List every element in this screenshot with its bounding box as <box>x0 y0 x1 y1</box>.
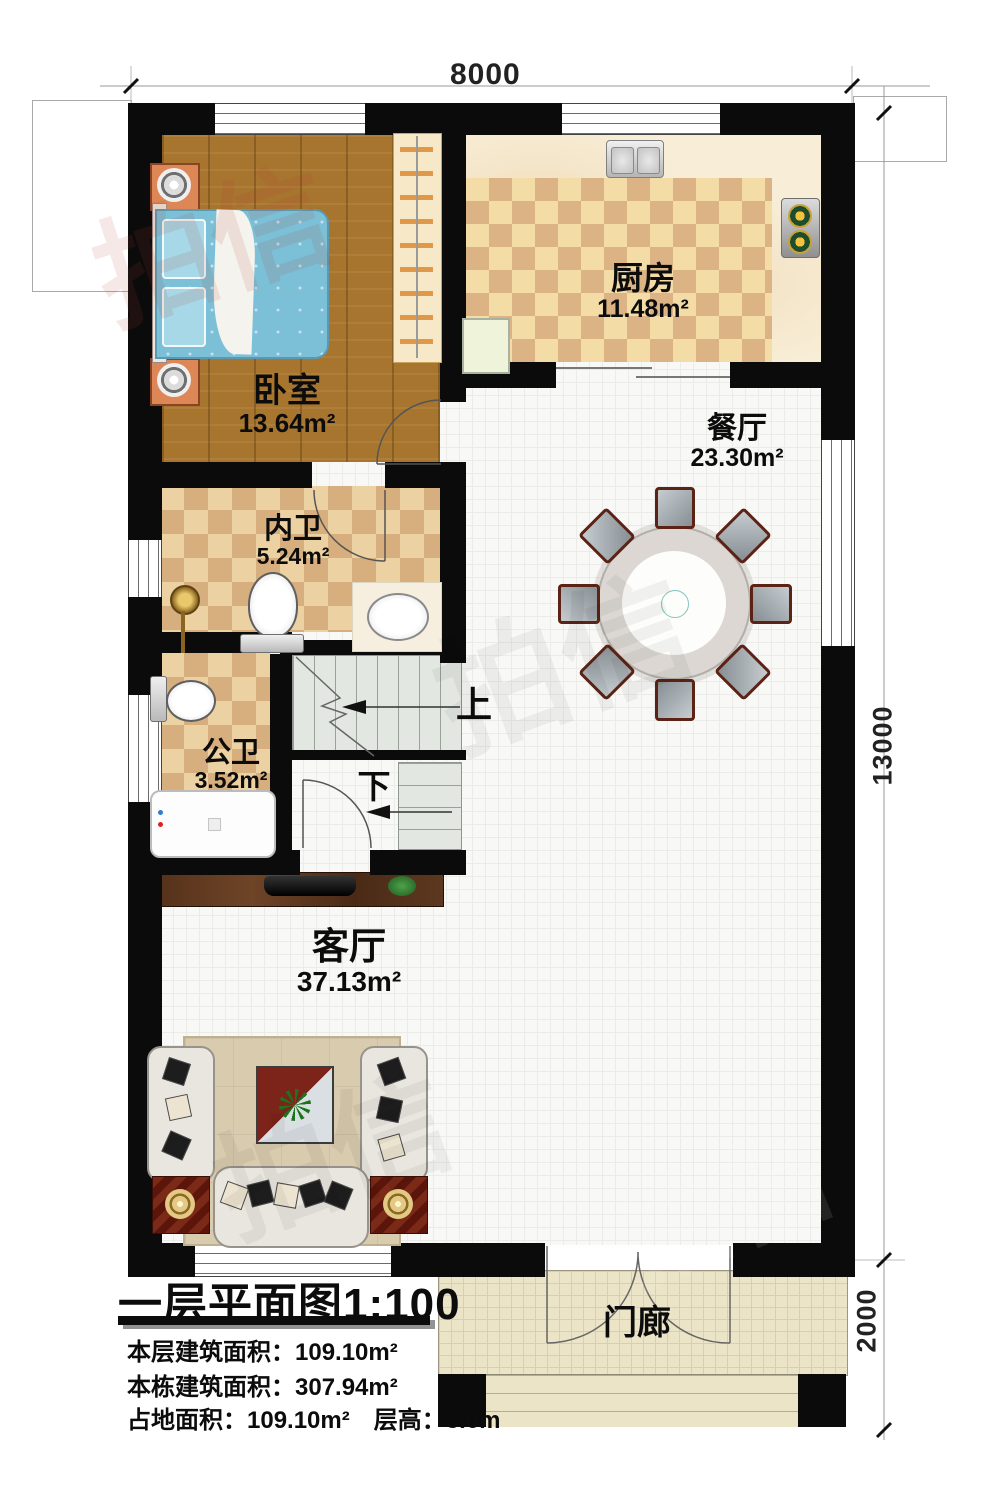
wall-bedroom-innerbath-a <box>160 462 312 488</box>
window-left-innerbath <box>128 540 162 597</box>
washbasin-counter <box>352 582 442 652</box>
toilet-tank <box>150 676 167 722</box>
stairs-up-label: 上 <box>456 686 492 724</box>
burner <box>788 230 812 254</box>
room-label-living: 客厅 37.13m² <box>297 928 401 996</box>
floor-lamp <box>170 585 200 615</box>
room-area: 37.13m² <box>297 967 401 996</box>
sofa-bottom <box>213 1166 369 1248</box>
wall-kitchen-bottom-right <box>730 362 821 388</box>
window-top-bedroom <box>215 103 365 135</box>
room-name: 门廊 <box>603 1306 671 1342</box>
sofa-left <box>147 1046 215 1182</box>
bed-pillow <box>162 287 206 347</box>
floor-plan-canvas: 8000 13000 2000 卧室 13.64m² 厨房 11.48m² 餐厅… <box>0 0 1000 1485</box>
wall-bottom-right <box>733 1243 855 1277</box>
sink-basin <box>637 147 660 174</box>
sofa-right <box>360 1046 428 1182</box>
porch-steps <box>486 1374 798 1427</box>
nightstand-lamp <box>157 168 191 202</box>
room-name: 客厅 <box>297 928 401 967</box>
room-label-public-bath: 公卫 3.52m² <box>195 738 268 793</box>
floor-lamp-stem <box>181 611 185 653</box>
bed-pillow <box>162 219 206 279</box>
room-label-porch: 门廊 <box>603 1306 671 1342</box>
room-name: 内卫 <box>257 514 330 544</box>
room-area: 11.48m² <box>597 296 689 322</box>
toilet <box>248 572 298 638</box>
room-label-inner-bath: 内卫 5.24m² <box>257 514 330 569</box>
wall-stairs-landing <box>292 750 466 760</box>
coffee-table-plant <box>279 1089 311 1121</box>
wall-hall-bottom-right <box>370 850 466 875</box>
fridge <box>462 318 510 374</box>
dining-chair <box>750 584 792 624</box>
wall-bedroom-innerbath-b <box>385 462 445 488</box>
stat-building-area: 本栋建筑面积：307.94m² <box>127 1367 398 1402</box>
window-right-dining <box>821 440 855 646</box>
wall-right <box>821 103 855 1277</box>
eave-outline-top-right <box>853 96 947 162</box>
wall-innerbath-right <box>440 462 466 663</box>
room-name: 卧室 <box>239 374 336 410</box>
room-label-kitchen: 厨房 11.48m² <box>597 262 689 322</box>
coffee-table <box>256 1066 334 1144</box>
room-area: 5.24m² <box>257 544 330 568</box>
bed-sheet-fold <box>211 209 256 354</box>
dining-chair <box>655 487 695 529</box>
room-name: 厨房 <box>597 262 689 296</box>
tap-cold <box>158 810 163 815</box>
dining-table-center <box>661 590 689 618</box>
nightstand-lamp <box>157 363 191 397</box>
title-underline <box>118 1316 430 1325</box>
cabinet-plant <box>388 876 416 896</box>
drain <box>208 818 221 831</box>
dimension-height-main: 13000 <box>868 691 899 801</box>
stat-footprint-height: 占地面积：109.10m² 层高：3.6m <box>127 1400 500 1435</box>
wardrobe-rod <box>416 136 418 358</box>
room-area: 23.30m² <box>690 445 783 471</box>
porch-corner-right <box>798 1374 846 1427</box>
tv <box>264 876 356 896</box>
room-label-bedroom: 卧室 13.64m² <box>239 374 336 437</box>
dimension-width: 8000 <box>450 58 521 92</box>
dining-chair <box>655 679 695 721</box>
tap-hot <box>158 822 163 827</box>
gas-stove <box>781 198 820 258</box>
sink-basin <box>611 147 634 174</box>
staircase-lower-flight <box>398 762 462 850</box>
washbasin <box>367 593 429 641</box>
room-name: 餐厅 <box>690 413 783 445</box>
dining-chair <box>558 584 600 624</box>
burner <box>788 204 812 228</box>
wardrobe <box>393 133 442 363</box>
shower-tray <box>150 790 276 858</box>
room-label-dining: 餐厅 23.30m² <box>690 413 783 471</box>
side-table-lamp <box>383 1189 413 1219</box>
room-name: 公卫 <box>195 738 268 768</box>
staircase-upper-flight <box>292 655 462 753</box>
stat-floor-area: 本层建筑面积：109.10m² <box>127 1332 398 1367</box>
room-area: 3.52m² <box>195 768 268 792</box>
window-top-kitchen <box>562 103 720 135</box>
stairs-down-label: 下 <box>358 770 391 805</box>
dimension-porch: 2000 <box>852 1276 883 1366</box>
room-area: 13.64m² <box>239 410 336 437</box>
side-table-lamp <box>165 1189 195 1219</box>
toilet-tank <box>240 634 304 653</box>
kitchen-sink <box>606 140 664 178</box>
toilet <box>166 680 216 722</box>
eave-outline-top-left <box>32 100 132 292</box>
